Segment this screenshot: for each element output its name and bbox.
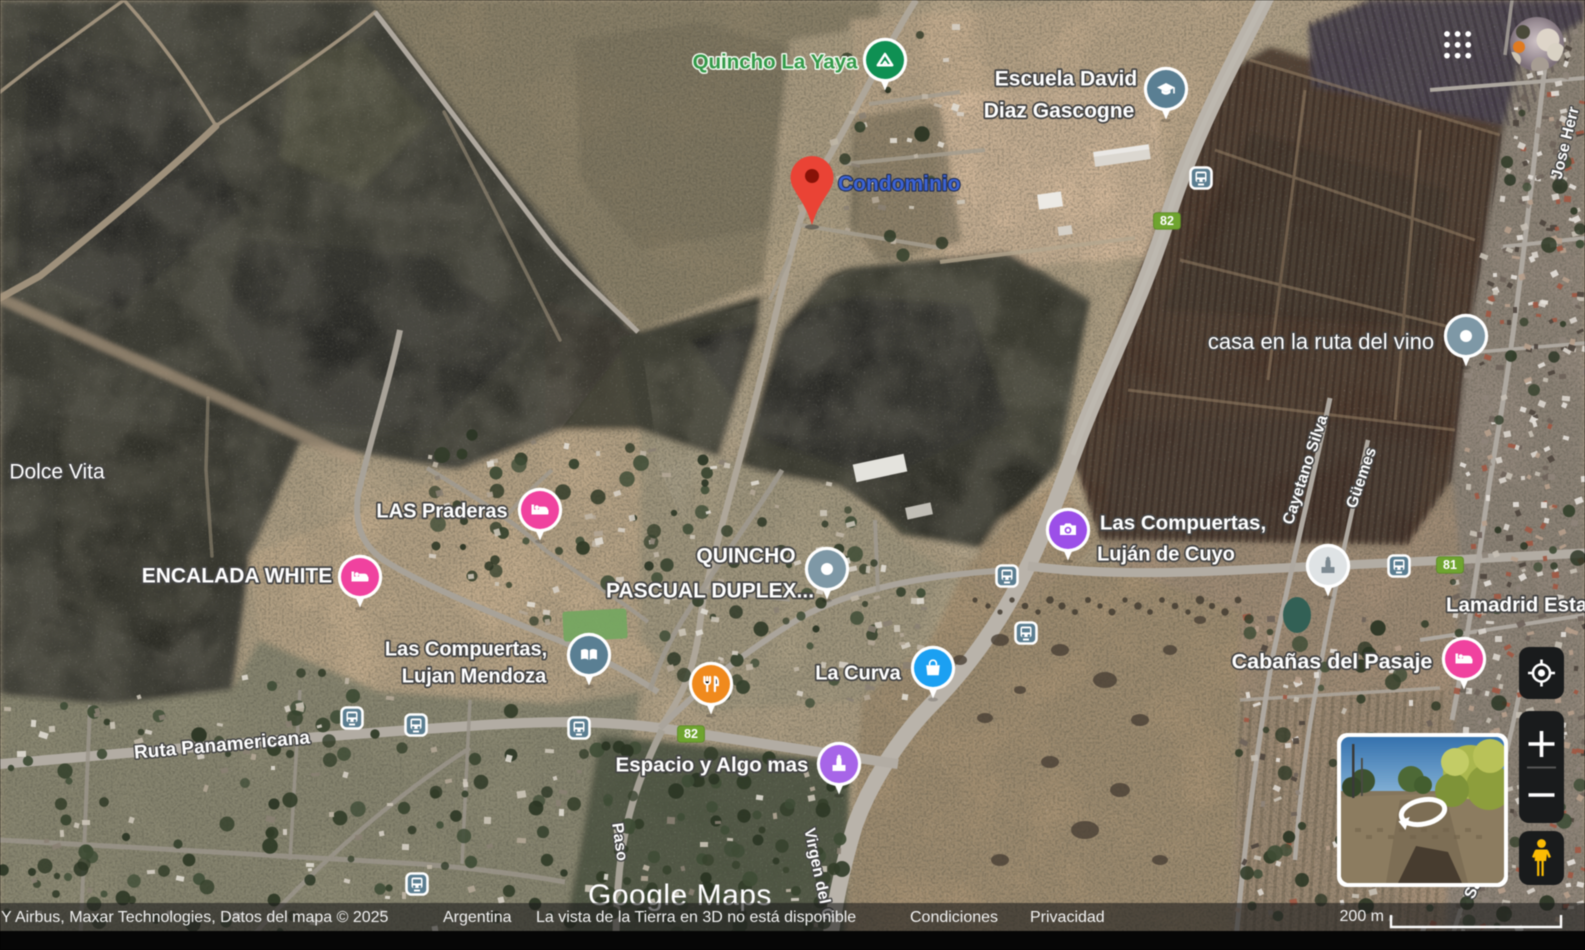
svg-text:PASCUAL DUPLEX...: PASCUAL DUPLEX... xyxy=(606,580,814,603)
svg-text:La vista de la Tierra en 3D no: La vista de la Tierra en 3D no está disp… xyxy=(536,909,856,926)
svg-text:Espacio y Algo mas: Espacio y Algo mas xyxy=(616,753,809,776)
svg-text:81: 81 xyxy=(1443,558,1457,572)
svg-text:QUINCHO: QUINCHO xyxy=(696,545,795,568)
svg-text:Quincho La Yaya: Quincho La Yaya xyxy=(693,50,858,73)
svg-text:La Curva: La Curva xyxy=(815,662,901,684)
svg-text:Cabañas del Pasaje: Cabañas del Pasaje xyxy=(1232,650,1433,674)
svg-text:Argentina: Argentina xyxy=(443,909,512,926)
svg-text:Condominio: Condominio xyxy=(838,173,960,196)
svg-text:82: 82 xyxy=(684,727,698,741)
svg-text:Condiciones: Condiciones xyxy=(910,909,998,926)
svg-text:casa en la ruta del vino: casa en la ruta del vino xyxy=(1208,329,1434,354)
svg-text:Y Airbus, Maxar Technologies,: Y Airbus, Maxar Technologies, Datos del … xyxy=(1,909,389,926)
svg-text:LAS Praderas: LAS Praderas xyxy=(376,500,507,522)
svg-text:82: 82 xyxy=(1160,214,1174,228)
svg-text:Privacidad: Privacidad xyxy=(1030,909,1105,926)
svg-text:Diaz Gascogne: Diaz Gascogne xyxy=(984,100,1135,123)
svg-text:ENCALADA WHITE: ENCALADA WHITE xyxy=(142,565,333,588)
svg-text:Lamadrid Esta: Lamadrid Esta xyxy=(1446,593,1585,616)
svg-text:Lujan Mendoza: Lujan Mendoza xyxy=(402,665,547,687)
svg-text:200 m: 200 m xyxy=(1340,908,1384,925)
svg-text:Dolce Vita: Dolce Vita xyxy=(9,461,105,484)
svg-text:Las Compuertas,: Las Compuertas, xyxy=(1100,511,1266,534)
svg-text:Las Compuertas,: Las Compuertas, xyxy=(385,638,547,660)
svg-text:Luján de Cuyo: Luján de Cuyo xyxy=(1097,543,1235,565)
svg-text:Escuela David: Escuela David xyxy=(995,68,1137,91)
